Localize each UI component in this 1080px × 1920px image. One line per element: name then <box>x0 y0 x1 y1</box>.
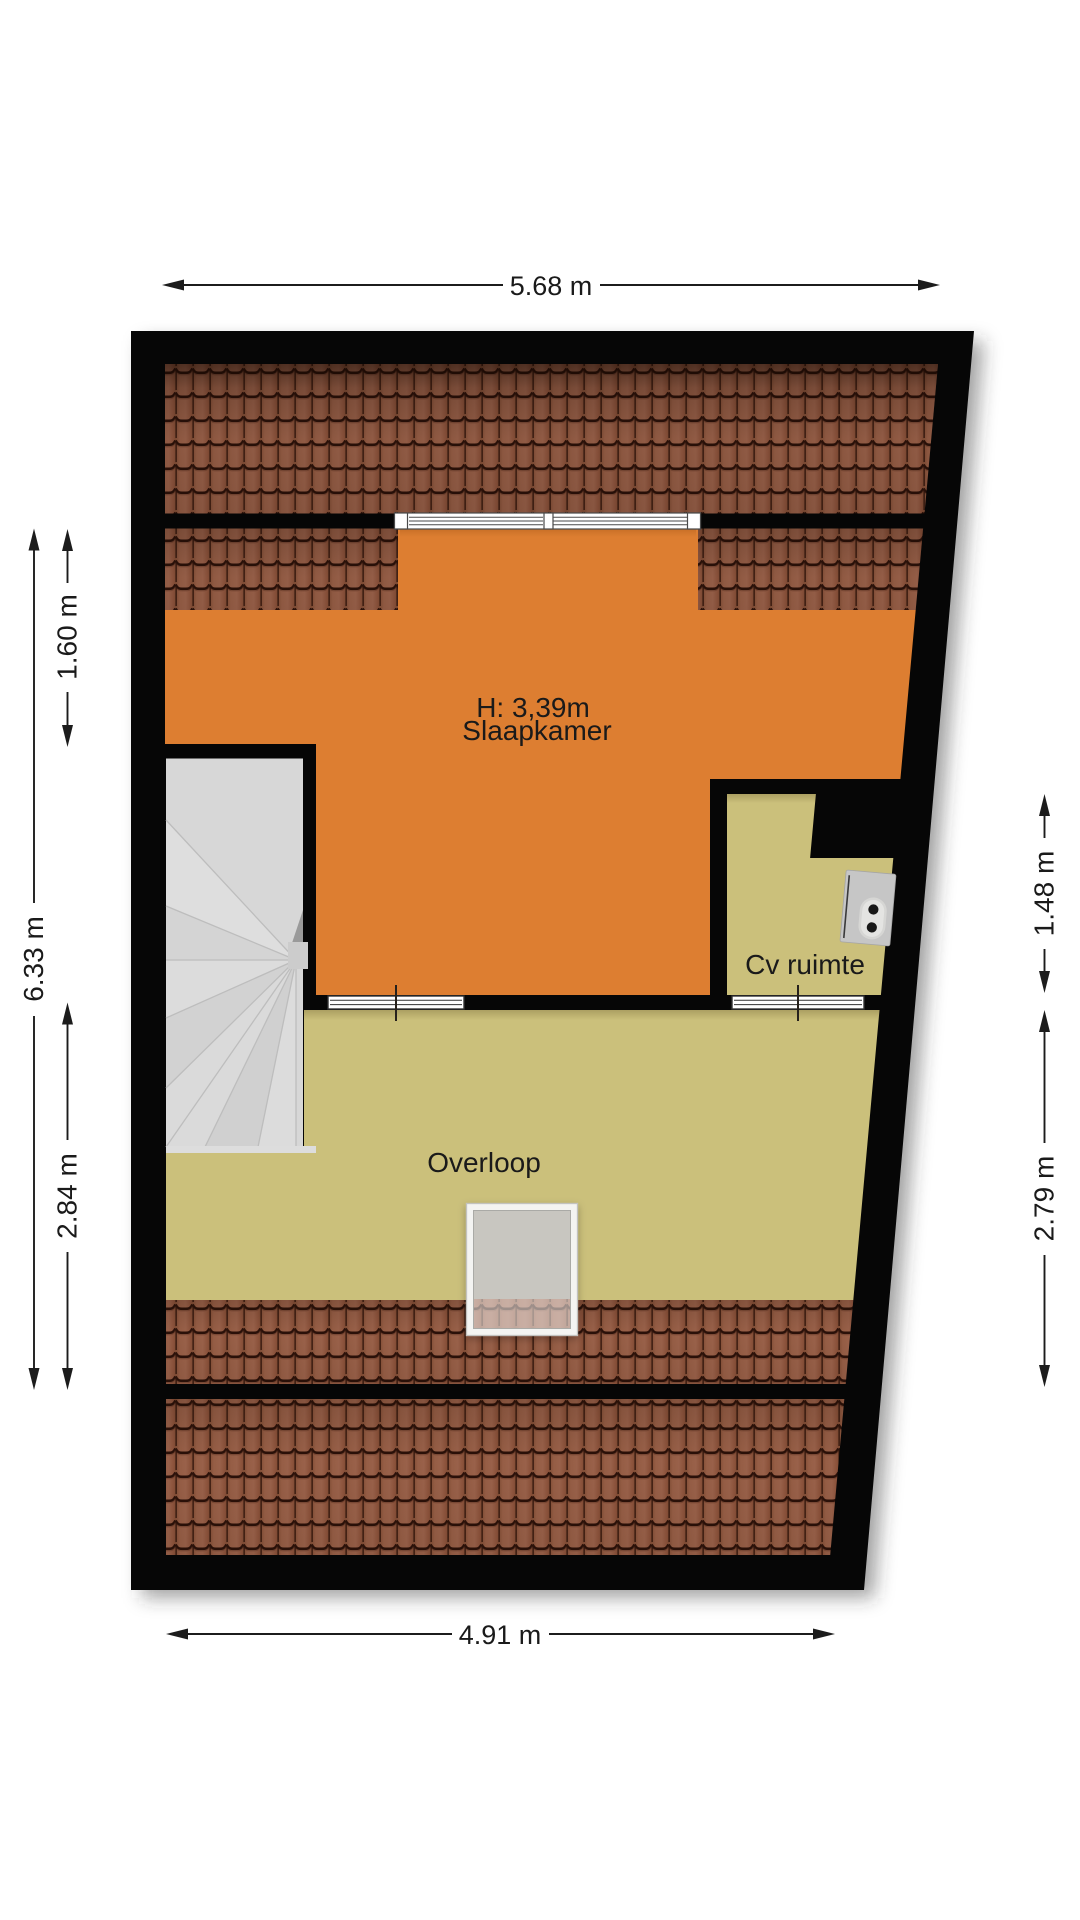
svg-text:1.48 m: 1.48 m <box>1029 851 1060 937</box>
svg-text:Overloop: Overloop <box>427 1147 541 1178</box>
svg-text:5.68 m: 5.68 m <box>510 271 593 301</box>
svg-text:6.33 m: 6.33 m <box>18 916 49 1002</box>
svg-text:Cv ruimte: Cv ruimte <box>745 949 865 980</box>
svg-text:Slaapkamer: Slaapkamer <box>462 715 611 746</box>
svg-text:4.91 m: 4.91 m <box>459 1620 542 1650</box>
svg-text:2.84 m: 2.84 m <box>52 1153 83 1239</box>
svg-text:1.60 m: 1.60 m <box>52 594 83 680</box>
svg-text:2.79 m: 2.79 m <box>1029 1156 1060 1242</box>
